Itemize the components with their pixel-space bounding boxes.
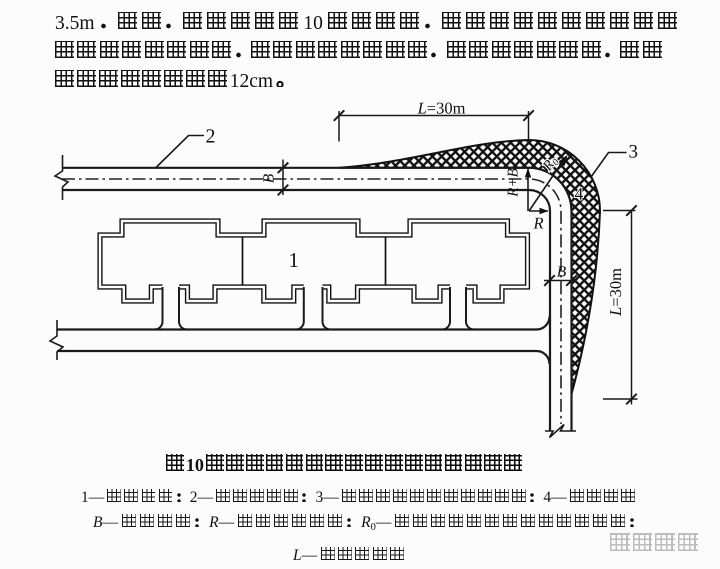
svg-text:2: 2: [206, 126, 216, 148]
svg-text:L=30m: L=30m: [417, 99, 466, 118]
svg-text:3: 3: [629, 142, 639, 163]
svg-text:1: 1: [289, 248, 300, 272]
svg-text:B: B: [261, 173, 278, 183]
svg-text:R: R: [533, 214, 544, 233]
svg-text:R+B: R+B: [506, 168, 522, 197]
svg-text:B: B: [557, 264, 567, 281]
svg-text:4: 4: [575, 184, 584, 204]
svg-text:L=30m: L=30m: [606, 268, 625, 317]
